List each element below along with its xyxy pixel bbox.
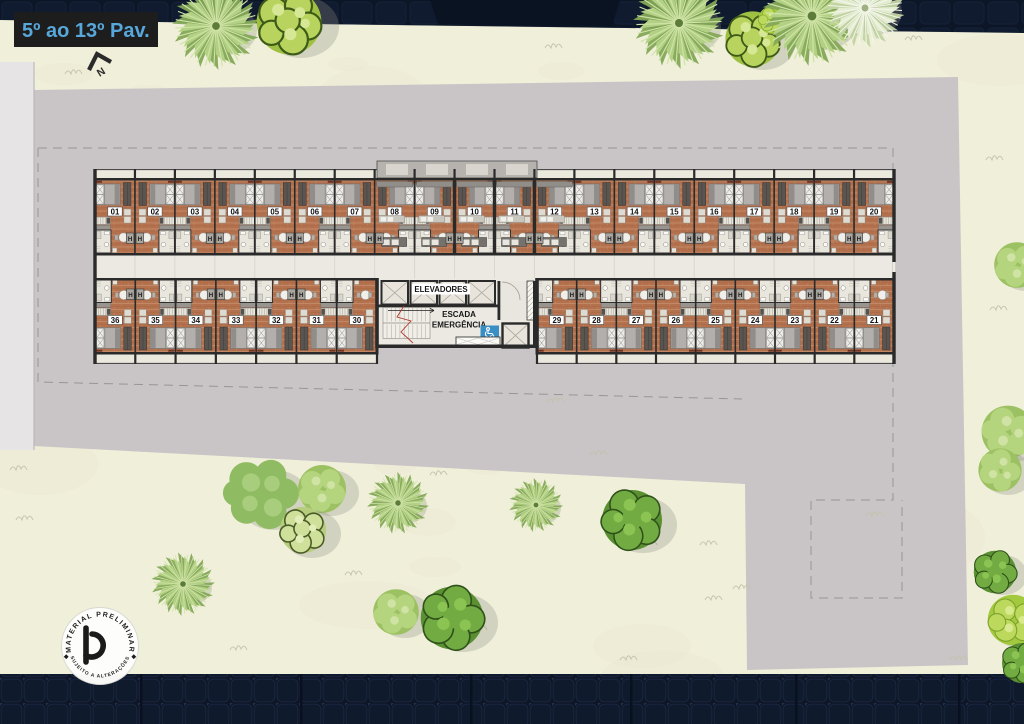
- svg-text:10: 10: [470, 207, 479, 216]
- svg-text:02: 02: [151, 207, 160, 216]
- svg-text:33: 33: [232, 316, 241, 325]
- svg-text:17: 17: [750, 207, 759, 216]
- svg-text:11: 11: [510, 207, 519, 216]
- svg-text:H: H: [808, 292, 813, 299]
- svg-text:H: H: [368, 236, 373, 243]
- svg-text:H: H: [377, 236, 382, 243]
- svg-text:34: 34: [191, 316, 200, 325]
- svg-text:13: 13: [590, 207, 599, 216]
- svg-text:H: H: [208, 236, 213, 243]
- svg-text:H: H: [288, 236, 293, 243]
- svg-text:5º ao 13º Pav.: 5º ao 13º Pav.: [22, 20, 150, 42]
- svg-text:H: H: [847, 236, 852, 243]
- svg-text:EMERGÊNCIA: EMERGÊNCIA: [432, 321, 486, 330]
- svg-text:29: 29: [552, 316, 561, 325]
- svg-text:H: H: [128, 236, 133, 243]
- svg-text:26: 26: [671, 316, 680, 325]
- svg-text:07: 07: [350, 207, 359, 216]
- svg-text:H: H: [617, 236, 622, 243]
- svg-text:H: H: [738, 292, 743, 299]
- svg-text:ELEVADORES: ELEVADORES: [414, 285, 467, 294]
- svg-text:H: H: [687, 236, 692, 243]
- svg-text:20: 20: [870, 207, 879, 216]
- svg-text:H: H: [209, 292, 214, 299]
- svg-text:18: 18: [790, 207, 799, 216]
- svg-text:22: 22: [830, 316, 839, 325]
- svg-text:H: H: [128, 292, 133, 299]
- svg-text:H: H: [659, 292, 664, 299]
- svg-text:19: 19: [830, 207, 839, 216]
- svg-text:01: 01: [111, 207, 120, 216]
- svg-text:31: 31: [312, 316, 321, 325]
- svg-text:05: 05: [270, 207, 279, 216]
- svg-text:H: H: [457, 236, 462, 243]
- svg-text:ESCADA: ESCADA: [442, 310, 476, 319]
- svg-text:28: 28: [592, 316, 601, 325]
- svg-text:16: 16: [710, 207, 719, 216]
- svg-text:H: H: [138, 236, 143, 243]
- svg-text:H: H: [579, 292, 584, 299]
- svg-text:H: H: [537, 236, 542, 243]
- svg-text:25: 25: [711, 316, 720, 325]
- svg-text:03: 03: [191, 207, 200, 216]
- svg-text:23: 23: [790, 316, 799, 325]
- svg-text:14: 14: [630, 207, 639, 216]
- svg-text:04: 04: [230, 207, 239, 216]
- svg-text:15: 15: [670, 207, 679, 216]
- svg-text:06: 06: [310, 207, 319, 216]
- svg-text:H: H: [697, 236, 702, 243]
- svg-text:H: H: [138, 292, 143, 299]
- svg-text:21: 21: [870, 316, 879, 325]
- svg-text:H: H: [217, 236, 222, 243]
- svg-text:30: 30: [353, 316, 362, 325]
- svg-text:27: 27: [632, 316, 641, 325]
- svg-text:12: 12: [550, 207, 559, 216]
- svg-text:H: H: [218, 292, 223, 299]
- svg-text:H: H: [728, 292, 733, 299]
- svg-text:H: H: [527, 236, 532, 243]
- svg-text:36: 36: [111, 316, 120, 325]
- svg-text:08: 08: [390, 207, 399, 216]
- svg-text:H: H: [289, 292, 294, 299]
- svg-text:09: 09: [430, 207, 439, 216]
- svg-text:32: 32: [272, 316, 281, 325]
- svg-text:H: H: [297, 236, 302, 243]
- svg-text:H: H: [570, 292, 575, 299]
- svg-text:H: H: [817, 292, 822, 299]
- svg-text:H: H: [649, 292, 654, 299]
- svg-text:35: 35: [151, 316, 160, 325]
- svg-text:H: H: [767, 236, 772, 243]
- svg-text:H: H: [857, 236, 862, 243]
- svg-text:H: H: [299, 292, 304, 299]
- svg-text:H: H: [607, 236, 612, 243]
- svg-text:24: 24: [751, 316, 760, 325]
- svg-text:H: H: [777, 236, 782, 243]
- svg-text:H: H: [447, 236, 452, 243]
